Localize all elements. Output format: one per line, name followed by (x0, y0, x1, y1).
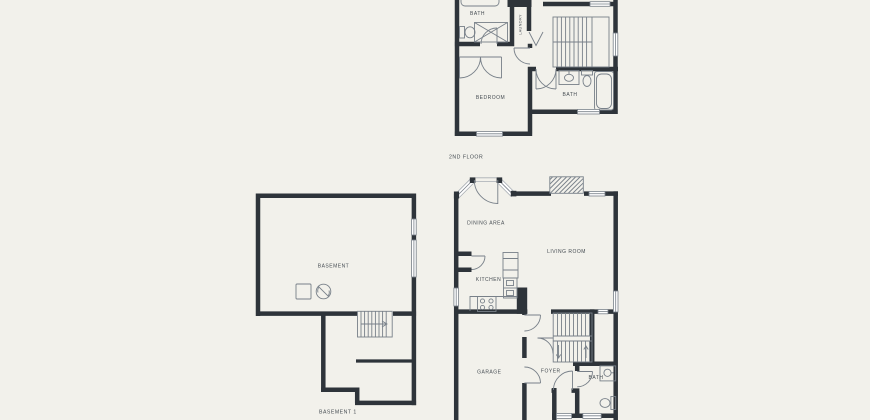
basement-walls (256, 194, 416, 406)
room-label-dining: DINING AREA (467, 220, 505, 226)
first-floor-plan: DINING AREA LIVING ROOM KITCHEN GARAGE F… (454, 177, 618, 420)
toilet-icon (600, 397, 616, 410)
hall-door-icon (524, 315, 540, 331)
sink-vanity-icon (559, 71, 579, 85)
room-label-bedroom: BEDROOM (476, 95, 505, 101)
fridge-icon (503, 253, 518, 279)
toilet-icon (460, 27, 476, 39)
bath-french-doors-icon (536, 69, 556, 89)
floor-plan-page: BATH LAUNDRY BEDROOM BATH 2ND FLOOR BASE… (0, 0, 870, 420)
room-label-basement: BASEMENT (318, 264, 350, 270)
toilet-icon (582, 71, 593, 87)
linen-closet-icon (475, 23, 508, 43)
bedroom-door-icon (514, 48, 530, 64)
second-floor-plan: BATH LAUNDRY BEDROOM BATH 2ND FLOOR (449, 0, 618, 161)
staircase-icon (553, 313, 592, 362)
room-label-bath: BATH (589, 375, 604, 381)
tub-icon (461, 0, 499, 6)
room-label-garage: GARAGE (477, 370, 502, 376)
basement-plan: BASEMENT BASEMENT 1 (256, 194, 416, 416)
laundry-bifold-door-icon (529, 32, 543, 46)
staircase-icon (553, 17, 609, 67)
bay-window (454, 177, 516, 198)
window (412, 219, 417, 277)
pantry-door-icon (472, 256, 486, 270)
room-label-kitchen: KITCHEN (476, 277, 501, 283)
water-heater-icon (296, 284, 311, 299)
room-label-laundry: LAUNDRY (518, 14, 523, 35)
fireplace-icon (550, 177, 584, 194)
tub-icon (595, 72, 614, 111)
second-floor-walls (455, 0, 618, 136)
furnace-icon (316, 284, 331, 299)
room-label-bath-top: BATH (470, 11, 485, 17)
floor-title-basement: BASEMENT 1 (319, 410, 357, 416)
stove-icon (478, 297, 497, 312)
staircase-icon (358, 311, 393, 337)
room-label-foyer: FOYER (541, 369, 561, 375)
floor-plans-svg: BATH LAUNDRY BEDROOM BATH 2ND FLOOR BASE… (0, 0, 870, 420)
closet-doors-icon (460, 57, 502, 78)
garage-door-icon (524, 367, 540, 383)
basement-stair-door-icon (538, 338, 554, 354)
room-label-living: LIVING ROOM (547, 249, 586, 255)
kitchen-counter-icon (470, 278, 517, 311)
floor-title-second: 2ND FLOOR (449, 155, 483, 161)
room-label-bath-right: BATH (563, 92, 578, 98)
front-entry-door-icon (474, 178, 498, 204)
